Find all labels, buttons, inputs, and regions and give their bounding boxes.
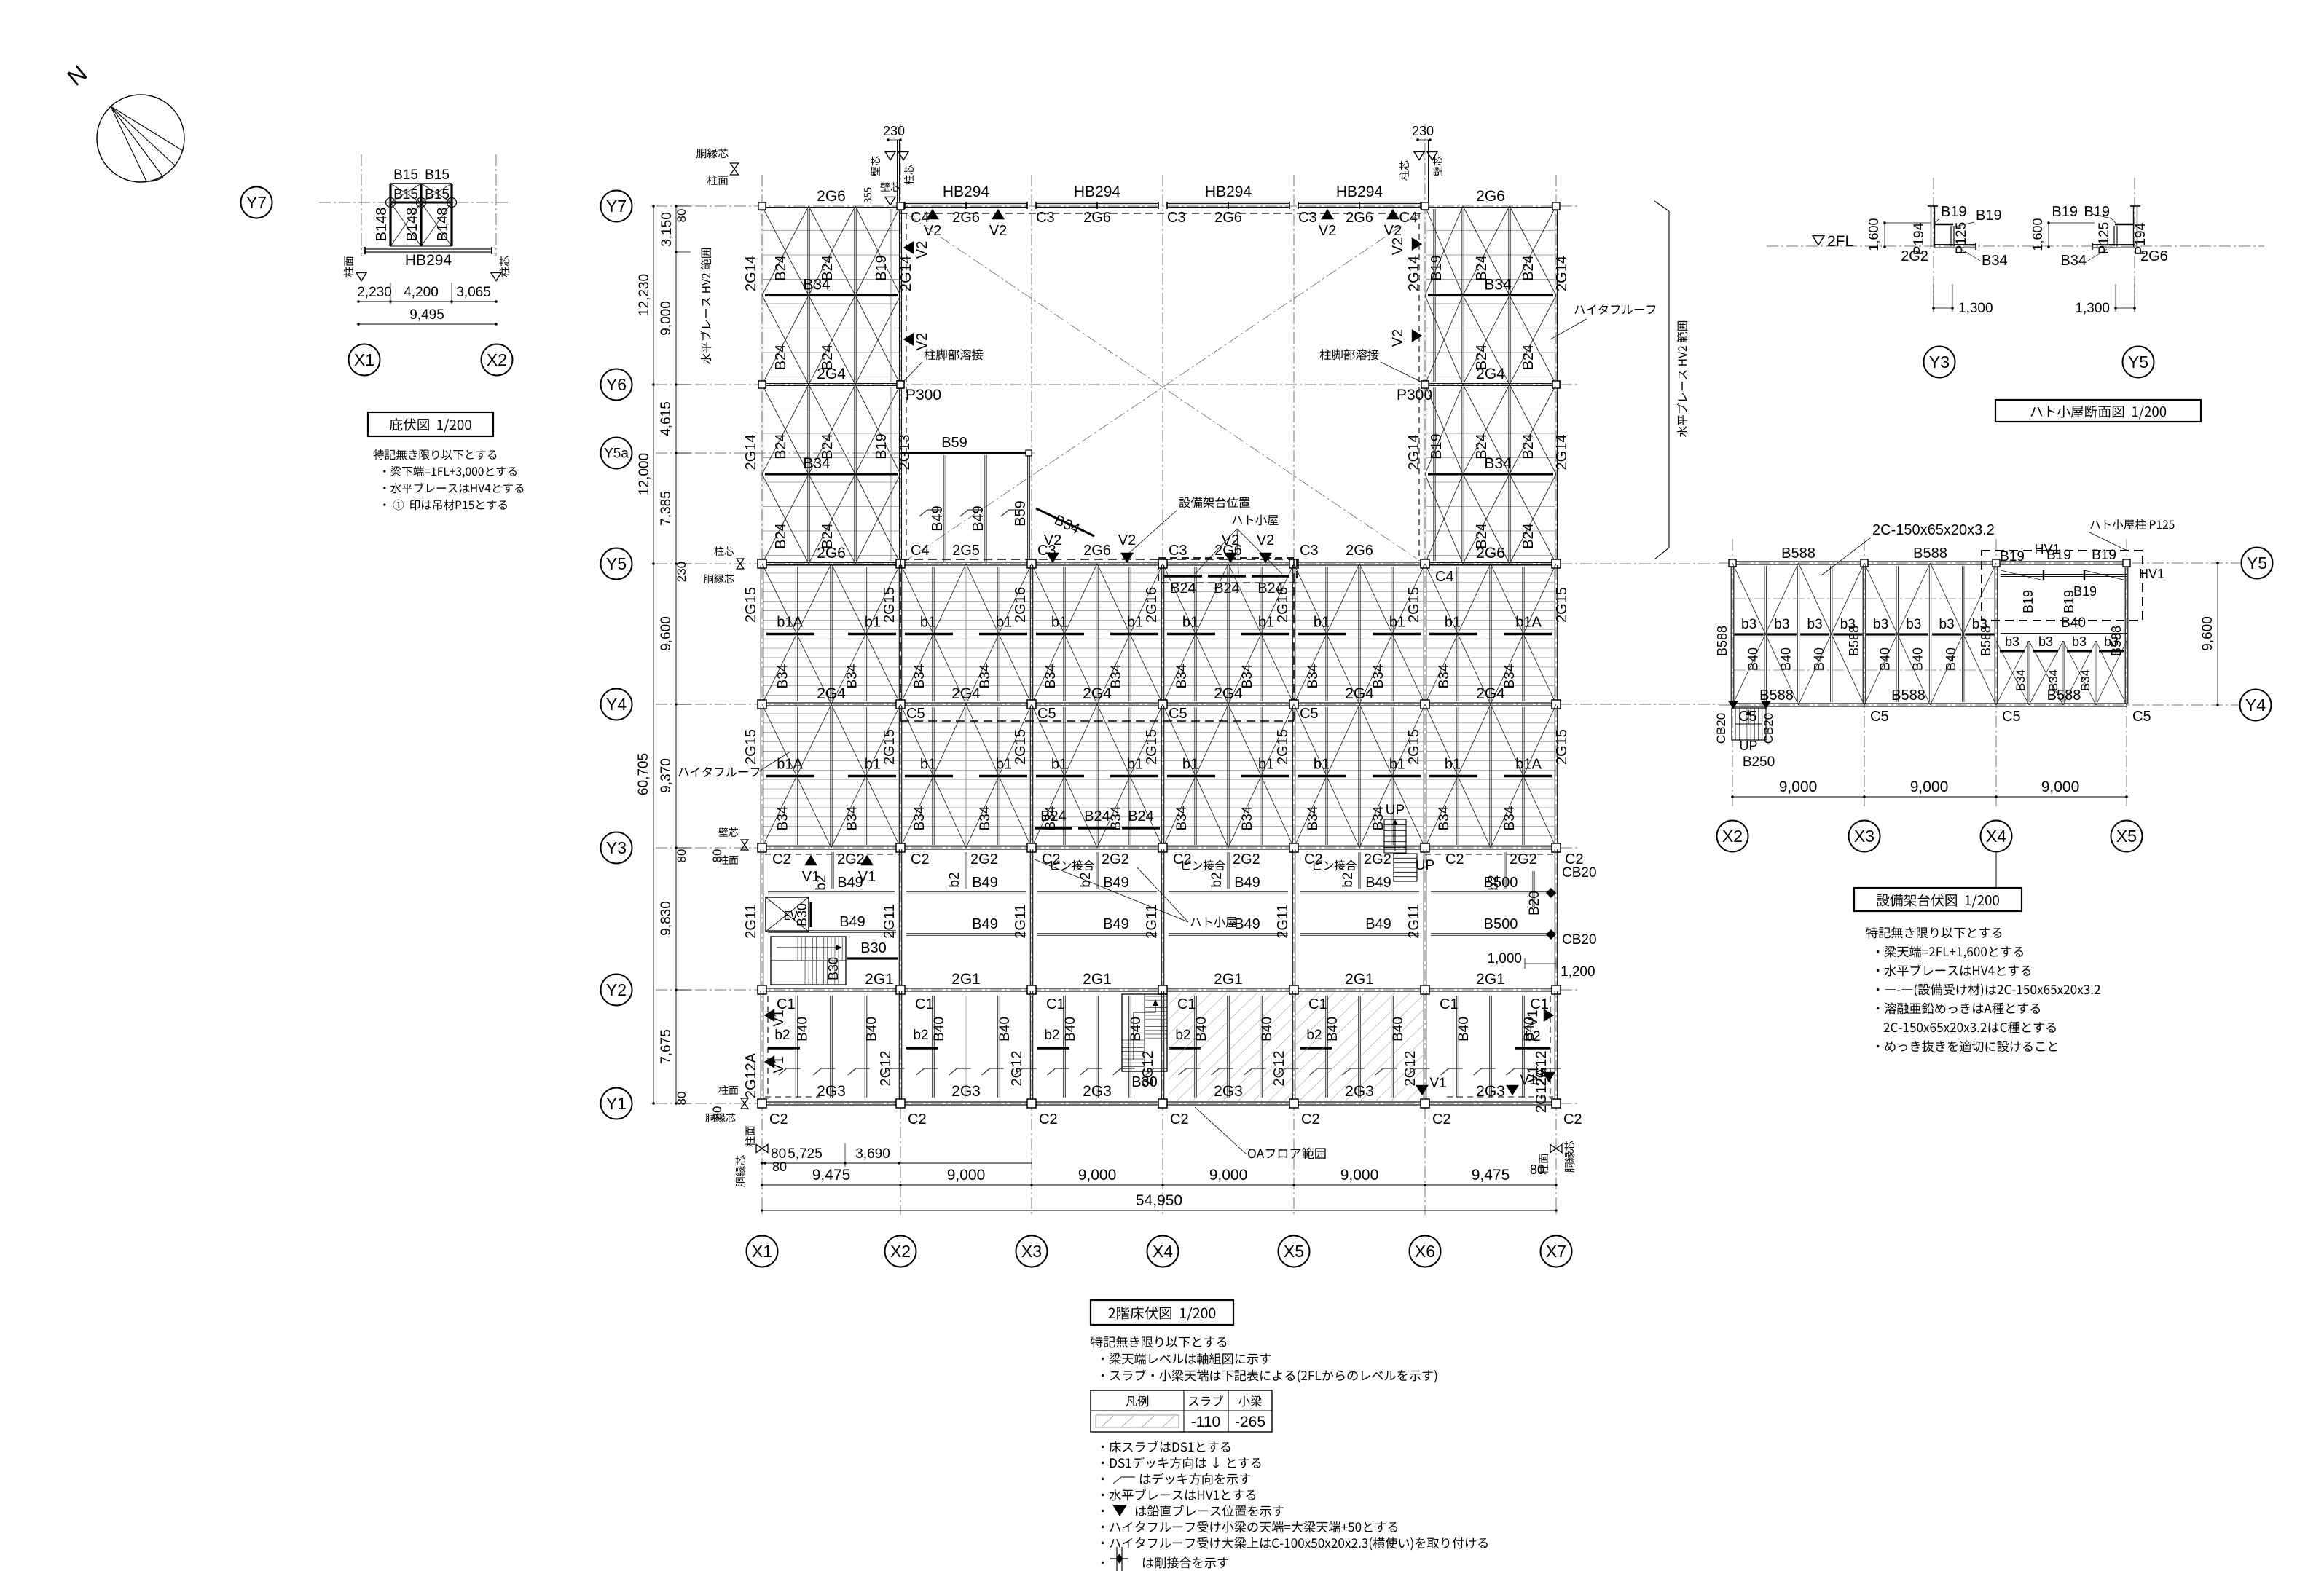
svg-text:2G15: 2G15 xyxy=(882,729,898,765)
svg-text:C2: C2 xyxy=(1563,1111,1582,1127)
svg-text:P300: P300 xyxy=(1397,387,1432,403)
svg-text:B24: B24 xyxy=(1214,580,1240,596)
svg-text:b1A: b1A xyxy=(1515,757,1542,773)
svg-text:C5: C5 xyxy=(1738,709,1757,725)
svg-text:B49: B49 xyxy=(972,916,998,932)
svg-text:B34: B34 xyxy=(978,806,993,830)
svg-text:b1: b1 xyxy=(1258,757,1274,773)
svg-text:B588: B588 xyxy=(1715,626,1730,656)
svg-text:CB20: CB20 xyxy=(1562,865,1597,881)
svg-text:B588: B588 xyxy=(1979,626,1993,656)
svg-text:9,000: 9,000 xyxy=(2041,779,2080,795)
svg-text:V2: V2 xyxy=(1384,223,1402,239)
svg-text:B588: B588 xyxy=(2109,626,2124,656)
svg-text:V2: V2 xyxy=(1390,237,1406,255)
svg-text:B40: B40 xyxy=(2061,615,2086,631)
svg-text:2G11: 2G11 xyxy=(1406,904,1422,938)
svg-text:C2: C2 xyxy=(1432,1111,1451,1127)
svg-text:B40: B40 xyxy=(1194,1017,1209,1042)
svg-text:HB294: HB294 xyxy=(1336,184,1383,200)
svg-text:B34: B34 xyxy=(803,455,831,472)
svg-text:B148: B148 xyxy=(404,208,420,242)
svg-text:UP: UP xyxy=(1416,858,1434,873)
svg-text:B19: B19 xyxy=(1429,255,1445,281)
svg-text:9,000: 9,000 xyxy=(659,301,674,336)
svg-text:3,065: 3,065 xyxy=(456,285,491,300)
svg-text:B40: B40 xyxy=(1128,1017,1144,1042)
svg-text:Y1: Y1 xyxy=(606,1094,627,1113)
svg-text:b3: b3 xyxy=(1741,617,1756,632)
svg-text:V1: V1 xyxy=(1526,1066,1541,1082)
svg-text:1,300: 1,300 xyxy=(1958,301,1993,316)
svg-text:4,200: 4,200 xyxy=(404,285,439,300)
svg-text:B19: B19 xyxy=(1976,208,2002,224)
svg-text:b1: b1 xyxy=(1182,615,1198,631)
svg-text:2G1: 2G1 xyxy=(1345,971,1374,988)
svg-text:X5: X5 xyxy=(2116,827,2137,846)
svg-text:B34: B34 xyxy=(845,664,860,688)
svg-text:B30: B30 xyxy=(826,957,841,980)
svg-text:80: 80 xyxy=(772,1159,787,1174)
svg-text:Y5: Y5 xyxy=(2247,554,2267,572)
svg-text:X1: X1 xyxy=(752,1242,772,1261)
svg-text:B49: B49 xyxy=(1103,875,1129,891)
svg-text:B19: B19 xyxy=(2000,549,2025,564)
svg-text:2G6: 2G6 xyxy=(1346,543,1373,559)
svg-text:B49: B49 xyxy=(837,875,863,891)
svg-text:P300: P300 xyxy=(906,387,941,403)
svg-text:2G14: 2G14 xyxy=(1554,435,1570,470)
svg-text:b1A: b1A xyxy=(1515,615,1542,631)
svg-text:2G2: 2G2 xyxy=(970,851,998,867)
svg-text:V1: V1 xyxy=(1429,1076,1446,1091)
svg-text:b1: b1 xyxy=(996,615,1012,631)
svg-text:b1: b1 xyxy=(996,757,1012,773)
svg-text:V2: V2 xyxy=(914,241,930,259)
svg-text:2G15: 2G15 xyxy=(1013,729,1029,765)
svg-text:X4: X4 xyxy=(1986,827,2006,846)
svg-text:2G2: 2G2 xyxy=(1233,851,1260,867)
svg-text:230: 230 xyxy=(675,562,688,582)
svg-text:2G3: 2G3 xyxy=(1345,1083,1374,1100)
svg-text:B19: B19 xyxy=(2021,590,2036,613)
svg-text:C2: C2 xyxy=(1301,1111,1320,1127)
svg-text:b1: b1 xyxy=(1051,757,1067,773)
svg-text:2G3: 2G3 xyxy=(1476,1083,1505,1100)
svg-text:B148: B148 xyxy=(374,208,390,242)
svg-text:B24: B24 xyxy=(1084,808,1110,824)
svg-text:b3: b3 xyxy=(1906,617,1921,632)
svg-text:B34: B34 xyxy=(1306,806,1321,830)
svg-text:B19: B19 xyxy=(1429,433,1445,460)
svg-text:2G6: 2G6 xyxy=(1346,210,1373,226)
svg-text:B40: B40 xyxy=(1746,647,1760,671)
svg-text:Y4: Y4 xyxy=(2245,696,2266,714)
svg-text:B24: B24 xyxy=(1040,808,1067,824)
svg-text:X1: X1 xyxy=(354,350,374,369)
svg-text:7,385: 7,385 xyxy=(659,491,674,526)
svg-text:B40: B40 xyxy=(1456,1017,1472,1042)
svg-text:C2: C2 xyxy=(769,1111,788,1127)
svg-text:b1: b1 xyxy=(1314,757,1330,773)
svg-text:B34: B34 xyxy=(1043,664,1059,688)
svg-text:2G6: 2G6 xyxy=(1083,543,1111,559)
svg-text:B40: B40 xyxy=(865,1017,880,1042)
svg-text:C5: C5 xyxy=(906,706,925,722)
svg-text:B20: B20 xyxy=(1527,891,1542,916)
svg-text:HB294: HB294 xyxy=(1074,184,1121,200)
svg-text:9,000: 9,000 xyxy=(1209,1167,1248,1184)
svg-text:2G6: 2G6 xyxy=(952,210,980,226)
svg-text:B40: B40 xyxy=(1877,647,1892,671)
svg-text:C3: C3 xyxy=(1300,543,1319,559)
svg-text:b2: b2 xyxy=(1340,872,1356,887)
svg-text:80: 80 xyxy=(675,1092,688,1106)
svg-text:C3: C3 xyxy=(1167,210,1186,226)
svg-text:80: 80 xyxy=(710,1106,724,1120)
svg-text:C2: C2 xyxy=(1039,1111,1058,1127)
svg-text:B148: B148 xyxy=(435,208,451,242)
svg-text:2C-150x65x20x3.2: 2C-150x65x20x3.2 xyxy=(1872,522,1995,538)
svg-text:2G16: 2G16 xyxy=(1144,587,1160,623)
svg-text:2G15: 2G15 xyxy=(743,729,759,765)
svg-text:2G11: 2G11 xyxy=(1275,904,1291,938)
svg-text:B588: B588 xyxy=(1847,626,1861,656)
svg-text:b2: b2 xyxy=(1209,872,1225,887)
svg-text:80: 80 xyxy=(710,849,724,863)
svg-text:2G6: 2G6 xyxy=(2140,248,2168,264)
svg-text:1,300: 1,300 xyxy=(2075,301,2110,316)
svg-text:2G11: 2G11 xyxy=(743,904,759,938)
svg-text:X6: X6 xyxy=(1415,1242,1435,1261)
svg-text:60,705: 60,705 xyxy=(636,753,651,795)
svg-text:2G1: 2G1 xyxy=(1214,971,1243,988)
svg-text:B19: B19 xyxy=(2052,204,2078,220)
svg-text:V2: V2 xyxy=(1257,532,1274,548)
svg-text:C2: C2 xyxy=(908,1111,927,1127)
svg-text:2G16: 2G16 xyxy=(1275,587,1291,623)
svg-text:B49: B49 xyxy=(839,914,865,930)
svg-text:12,000: 12,000 xyxy=(637,453,652,495)
svg-text:80: 80 xyxy=(1530,1162,1544,1177)
svg-text:2G15: 2G15 xyxy=(1554,729,1570,765)
svg-text:2G15: 2G15 xyxy=(1406,729,1422,765)
svg-text:7,675: 7,675 xyxy=(659,1029,674,1064)
svg-text:B15: B15 xyxy=(425,168,450,183)
svg-text:2G15: 2G15 xyxy=(743,587,759,623)
svg-text:b1: b1 xyxy=(1127,757,1143,773)
svg-text:B34: B34 xyxy=(912,664,927,688)
svg-text:B24: B24 xyxy=(1128,808,1154,824)
svg-text:B24: B24 xyxy=(773,433,789,460)
svg-text:b3: b3 xyxy=(1873,617,1888,632)
svg-text:B24: B24 xyxy=(1520,433,1536,460)
svg-text:B15: B15 xyxy=(425,187,450,202)
svg-text:B34: B34 xyxy=(1240,806,1255,830)
svg-text:P125: P125 xyxy=(2097,222,2112,254)
svg-text:b1: b1 xyxy=(1314,615,1330,631)
svg-text:C2: C2 xyxy=(911,851,930,867)
svg-text:2G6: 2G6 xyxy=(817,188,846,205)
svg-text:X3: X3 xyxy=(1854,827,1874,846)
svg-text:C1: C1 xyxy=(1046,996,1065,1012)
svg-text:X4: X4 xyxy=(1153,1242,1173,1261)
svg-text:9,000: 9,000 xyxy=(947,1167,986,1184)
svg-text:HB294: HB294 xyxy=(405,252,452,269)
svg-text:2G3: 2G3 xyxy=(951,1083,981,1100)
svg-text:b1A: b1A xyxy=(777,615,803,631)
svg-text:b1: b1 xyxy=(865,757,881,773)
svg-text:9,000: 9,000 xyxy=(1078,1167,1117,1184)
svg-text:Y5: Y5 xyxy=(606,554,627,573)
svg-text:C4: C4 xyxy=(911,543,930,559)
svg-text:Y4: Y4 xyxy=(606,695,627,714)
svg-text:B34: B34 xyxy=(776,664,791,688)
svg-text:Y7: Y7 xyxy=(606,197,627,216)
svg-text:2G3: 2G3 xyxy=(1083,1083,1112,1100)
svg-text:B40: B40 xyxy=(796,1017,811,1042)
svg-text:B34: B34 xyxy=(776,806,791,830)
svg-text:b1: b1 xyxy=(1389,615,1405,631)
svg-text:9,000: 9,000 xyxy=(1779,779,1818,795)
svg-text:1,000: 1,000 xyxy=(1487,951,1522,966)
svg-text:B34: B34 xyxy=(2014,669,2027,691)
svg-text:2G11: 2G11 xyxy=(882,904,898,938)
svg-text:2G4: 2G4 xyxy=(1476,366,1505,382)
svg-text:CB20: CB20 xyxy=(1762,713,1775,744)
svg-text:V2: V2 xyxy=(1118,532,1136,548)
svg-text:b3: b3 xyxy=(2072,634,2087,649)
svg-text:B49: B49 xyxy=(1365,875,1391,891)
svg-text:B19: B19 xyxy=(874,433,890,460)
svg-text:B24: B24 xyxy=(1520,344,1536,371)
svg-text:Y2: Y2 xyxy=(606,980,627,999)
svg-text:54,950: 54,950 xyxy=(1136,1192,1182,1209)
svg-text:9,600: 9,600 xyxy=(2200,616,2215,651)
svg-text:9,370: 9,370 xyxy=(659,758,674,793)
svg-text:C1: C1 xyxy=(915,996,934,1012)
svg-text:C1: C1 xyxy=(1177,996,1196,1012)
svg-text:b3: b3 xyxy=(1939,617,1955,632)
svg-text:2G14: 2G14 xyxy=(1406,435,1422,470)
svg-text:1,200: 1,200 xyxy=(1561,964,1595,980)
svg-text:2G4: 2G4 xyxy=(1083,685,1112,702)
svg-text:2G4: 2G4 xyxy=(1345,685,1374,702)
svg-text:b1A: b1A xyxy=(777,757,803,773)
svg-text:B34: B34 xyxy=(1484,277,1512,294)
svg-text:Y7: Y7 xyxy=(246,193,267,212)
svg-text:B34: B34 xyxy=(1306,664,1321,688)
svg-text:2G6: 2G6 xyxy=(1476,545,1505,562)
svg-text:B40: B40 xyxy=(1325,1017,1340,1042)
svg-text:9,600: 9,600 xyxy=(659,616,674,651)
svg-text:b1: b1 xyxy=(920,757,936,773)
svg-text:B34: B34 xyxy=(1174,806,1190,830)
svg-text:B19: B19 xyxy=(2092,548,2116,563)
svg-text:B34: B34 xyxy=(1484,455,1512,472)
svg-text:230: 230 xyxy=(1412,124,1434,138)
svg-text:-110: -110 xyxy=(1191,1414,1220,1430)
svg-text:C5: C5 xyxy=(1300,706,1319,722)
svg-text:b1: b1 xyxy=(1127,615,1143,631)
svg-text:B34: B34 xyxy=(845,806,860,830)
svg-text:V2: V2 xyxy=(914,333,930,350)
svg-text:HV1: HV1 xyxy=(2139,567,2164,581)
svg-text:C5: C5 xyxy=(2132,709,2151,725)
svg-text:V2: V2 xyxy=(1390,329,1406,347)
svg-text:2G1: 2G1 xyxy=(951,971,981,988)
svg-text:V2: V2 xyxy=(1319,223,1336,239)
svg-text:2G4: 2G4 xyxy=(817,685,846,702)
svg-text:C3: C3 xyxy=(1036,210,1055,226)
svg-text:12,230: 12,230 xyxy=(637,274,652,316)
svg-text:b2: b2 xyxy=(1525,1029,1540,1044)
svg-text:B30: B30 xyxy=(860,940,887,956)
svg-text:HV1: HV1 xyxy=(2034,542,2060,556)
svg-text:b2: b2 xyxy=(814,875,829,890)
svg-text:b1: b1 xyxy=(1445,615,1461,631)
svg-text:V2: V2 xyxy=(989,223,1007,239)
svg-text:80: 80 xyxy=(675,209,688,223)
svg-text:C3: C3 xyxy=(1169,543,1187,559)
svg-text:CB20: CB20 xyxy=(1714,713,1728,744)
svg-text:B40: B40 xyxy=(1812,647,1826,671)
svg-text:X3: X3 xyxy=(1021,1242,1042,1261)
svg-text:B49: B49 xyxy=(1234,875,1260,891)
svg-text:B15: B15 xyxy=(393,187,418,202)
svg-text:B49: B49 xyxy=(1234,916,1260,932)
svg-text:b1: b1 xyxy=(865,615,881,631)
svg-text:2,230: 2,230 xyxy=(357,285,392,300)
svg-text:B588: B588 xyxy=(2047,688,2081,704)
svg-text:b1: b1 xyxy=(1445,757,1461,773)
svg-text:B40: B40 xyxy=(1063,1017,1078,1042)
svg-text:V1: V1 xyxy=(772,1056,787,1073)
svg-text:2G2: 2G2 xyxy=(1901,248,1928,264)
svg-text:C5: C5 xyxy=(1870,709,1889,725)
svg-text:2G6: 2G6 xyxy=(1476,188,1505,205)
svg-text:X2: X2 xyxy=(890,1242,911,1261)
svg-text:Y5: Y5 xyxy=(2128,353,2148,371)
svg-text:9,475: 9,475 xyxy=(812,1167,851,1184)
svg-text:B19: B19 xyxy=(1941,204,1967,220)
svg-text:B34: B34 xyxy=(803,277,831,294)
svg-text:B34: B34 xyxy=(1174,664,1190,688)
svg-text:2G4: 2G4 xyxy=(951,685,981,702)
svg-text:B250: B250 xyxy=(1743,755,1775,770)
svg-text:B24: B24 xyxy=(773,344,789,371)
svg-text:b2: b2 xyxy=(774,1028,790,1043)
svg-text:X5: X5 xyxy=(1284,1242,1304,1261)
svg-text:3,150: 3,150 xyxy=(659,212,675,247)
svg-text:Y6: Y6 xyxy=(606,375,627,394)
svg-text:b1: b1 xyxy=(1051,615,1067,631)
svg-text:V1: V1 xyxy=(772,1009,787,1026)
svg-text:b2: b2 xyxy=(1078,872,1094,887)
svg-text:HB294: HB294 xyxy=(943,184,990,200)
svg-text:Y3: Y3 xyxy=(606,838,627,857)
svg-text:b2: b2 xyxy=(947,872,962,887)
svg-text:C5: C5 xyxy=(1037,706,1056,722)
svg-text:2FL: 2FL xyxy=(1827,233,1853,250)
svg-text:B49: B49 xyxy=(1103,916,1129,932)
svg-text:2G2: 2G2 xyxy=(837,851,865,867)
svg-text:1,600: 1,600 xyxy=(2030,218,2045,251)
svg-text:B30: B30 xyxy=(1131,1074,1158,1090)
svg-text:2G6: 2G6 xyxy=(1083,210,1111,226)
svg-text:2G4: 2G4 xyxy=(817,366,846,382)
svg-text:B34: B34 xyxy=(1109,806,1124,830)
svg-text:B24: B24 xyxy=(773,523,789,549)
svg-text:b2: b2 xyxy=(913,1028,928,1043)
svg-text:3,690: 3,690 xyxy=(855,1146,890,1162)
svg-text:V1: V1 xyxy=(1526,1009,1541,1026)
svg-text:b2: b2 xyxy=(1306,1028,1322,1043)
svg-text:B34: B34 xyxy=(2060,253,2087,269)
svg-text:C1: C1 xyxy=(1308,996,1327,1012)
svg-text:5,725: 5,725 xyxy=(788,1146,823,1162)
svg-text:b1: b1 xyxy=(1182,757,1198,773)
svg-text:2G1: 2G1 xyxy=(865,971,894,988)
svg-text:C3: C3 xyxy=(1298,210,1317,226)
svg-text:-265: -265 xyxy=(1235,1414,1265,1430)
svg-text:UP: UP xyxy=(1739,739,1757,753)
svg-text:C2: C2 xyxy=(1173,851,1192,867)
svg-text:80: 80 xyxy=(675,849,688,863)
svg-text:2G14: 2G14 xyxy=(743,435,759,470)
svg-text:2G14: 2G14 xyxy=(1406,256,1422,291)
svg-text:9,495: 9,495 xyxy=(409,307,444,323)
svg-text:Y3: Y3 xyxy=(1929,353,1950,371)
svg-text:C4: C4 xyxy=(1399,210,1418,226)
svg-text:9,000: 9,000 xyxy=(1340,1167,1379,1184)
svg-text:2G12A: 2G12A xyxy=(743,1052,759,1098)
svg-text:2G5: 2G5 xyxy=(952,543,980,559)
svg-text:C2: C2 xyxy=(1170,1111,1189,1127)
svg-text:B59: B59 xyxy=(1013,500,1029,527)
svg-text:B588: B588 xyxy=(1781,546,1815,562)
svg-text:2G4: 2G4 xyxy=(1214,685,1243,702)
svg-text:C2: C2 xyxy=(1445,851,1464,867)
svg-text:B40: B40 xyxy=(1944,647,1958,671)
svg-text:2G15: 2G15 xyxy=(1275,729,1291,765)
svg-text:2G15: 2G15 xyxy=(882,587,898,623)
svg-text:2G2: 2G2 xyxy=(1364,851,1391,867)
svg-text:B59: B59 xyxy=(941,435,967,451)
svg-text:2G14: 2G14 xyxy=(1554,256,1570,291)
svg-text:9,000: 9,000 xyxy=(1910,779,1949,795)
svg-text:C2: C2 xyxy=(772,851,791,867)
svg-text:C2: C2 xyxy=(1304,851,1323,867)
svg-text:C5: C5 xyxy=(2002,709,2021,725)
svg-text:B40: B40 xyxy=(932,1017,947,1042)
svg-text:C2: C2 xyxy=(1042,851,1061,867)
svg-text:X2: X2 xyxy=(487,350,507,369)
svg-text:b1: b1 xyxy=(920,615,936,631)
svg-text:1,600: 1,600 xyxy=(1866,218,1881,251)
svg-text:b1: b1 xyxy=(1389,757,1405,773)
svg-text:B34: B34 xyxy=(1437,806,1452,830)
svg-text:4,615: 4,615 xyxy=(659,401,674,436)
svg-text:B500: B500 xyxy=(1484,875,1518,891)
svg-text:UP: UP xyxy=(1386,803,1405,818)
svg-text:b3: b3 xyxy=(2005,634,2019,649)
svg-text:B40: B40 xyxy=(1779,647,1794,671)
svg-text:2G15: 2G15 xyxy=(1554,587,1570,623)
svg-text:V2: V2 xyxy=(1044,532,1061,548)
svg-text:B19: B19 xyxy=(2084,204,2110,220)
svg-text:B40: B40 xyxy=(1911,647,1925,671)
